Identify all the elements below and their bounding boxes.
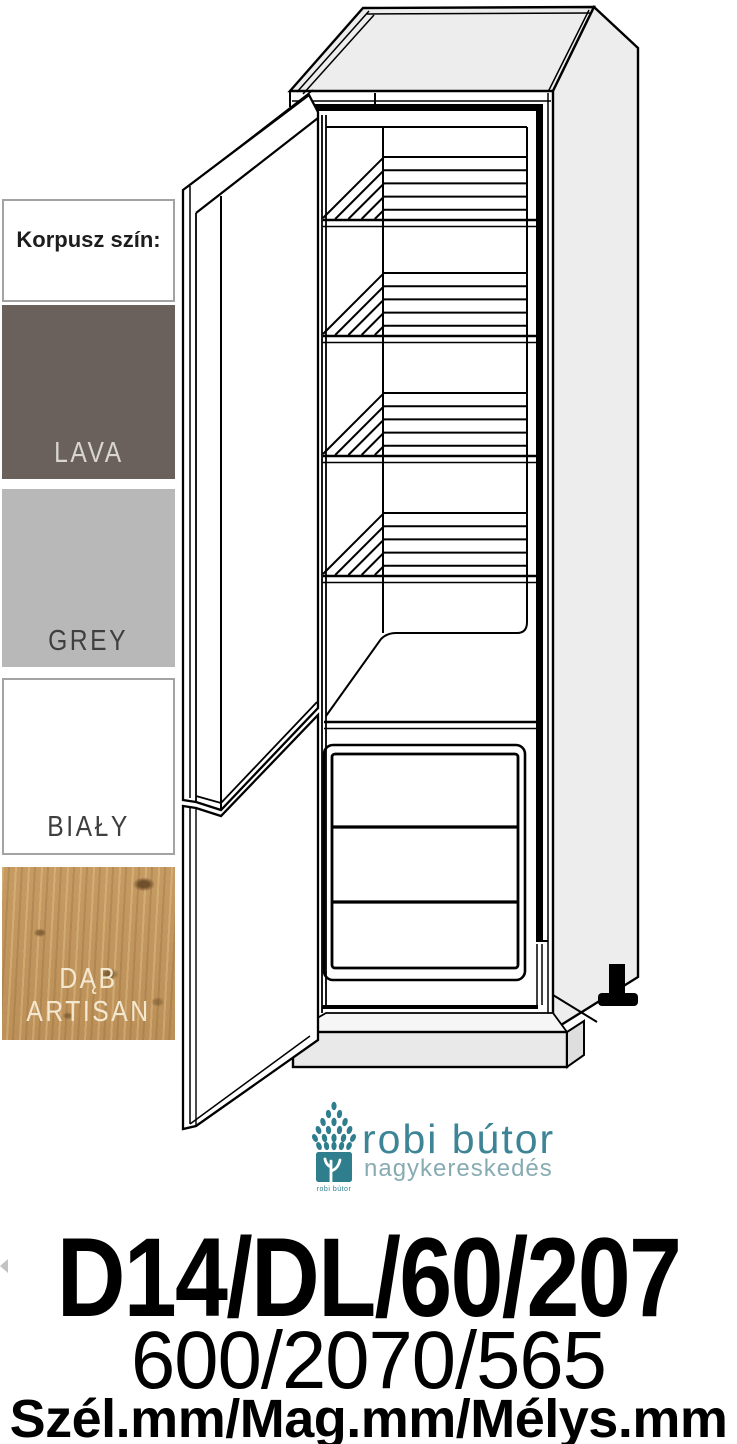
- swatch-lava: LAVA: [2, 305, 175, 479]
- swatch-label: LAVA: [54, 437, 124, 479]
- dimensions-unit-label: Szél.mm/Mag.mm/Mélys.mm: [0, 1392, 737, 1444]
- cabinet-interior: [323, 127, 536, 729]
- swatch-bialy: BIAŁY: [2, 678, 175, 855]
- tree-logo-icon: [311, 1101, 357, 1185]
- korpusz-header: Korpusz szín:: [2, 199, 175, 302]
- swatch-dab-artisan: DĄB ARTISAN: [2, 867, 175, 1040]
- edge-artifact-icon: [0, 1259, 8, 1273]
- cabinet-top: [290, 7, 594, 94]
- cabinet-right-side: [548, 7, 638, 1030]
- swatch-label: GREY: [48, 625, 128, 667]
- freezer-drawers: [324, 745, 525, 980]
- swatch-grey: GREY: [2, 489, 175, 667]
- swatch-panel: Korpusz szín: LAVA GREY BIAŁY DĄB ARTISA…: [2, 199, 175, 1041]
- swatch-label: DĄB ARTISAN: [15, 963, 162, 1040]
- product-image: Korpusz szín: LAVA GREY BIAŁY DĄB ARTISA…: [0, 0, 737, 1444]
- logo-badge-label: robi bútor: [299, 1186, 369, 1193]
- wire-shelves: [323, 157, 536, 583]
- plinth: [293, 1007, 584, 1067]
- korpusz-header-label: Korpusz szín:: [16, 227, 160, 253]
- tree-leaves: [311, 1102, 357, 1151]
- cabinet-door-upper: [183, 90, 318, 810]
- swatch-label: BIAŁY: [47, 811, 130, 853]
- brand-subtitle: nagykereskedés: [364, 1155, 553, 1183]
